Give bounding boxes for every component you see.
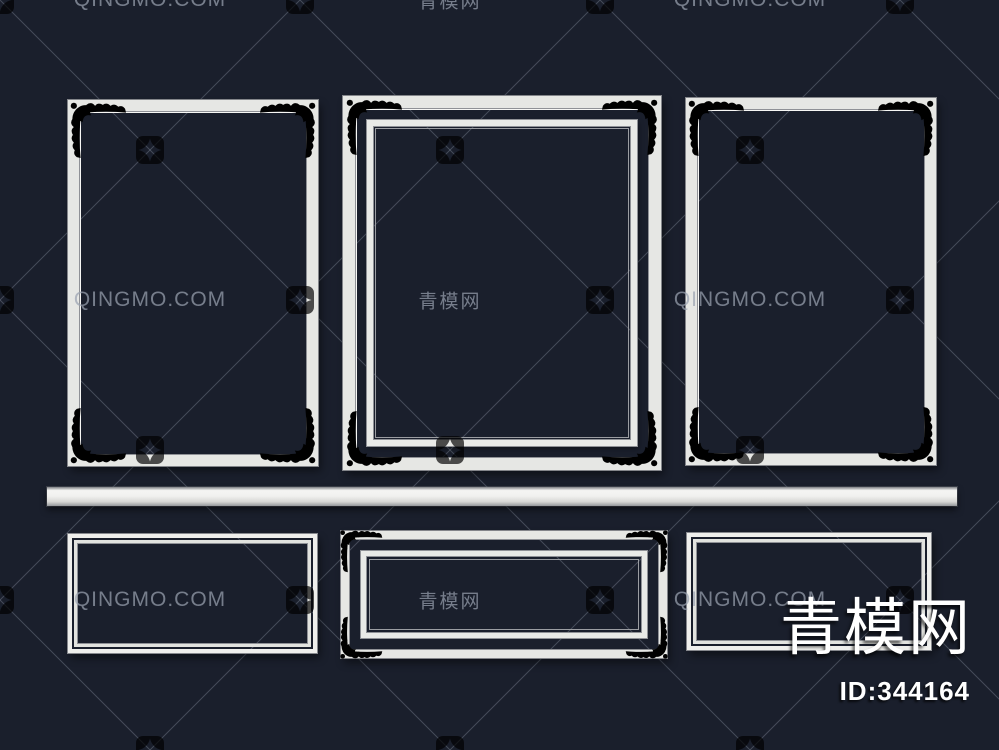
qingmo-logo-icon (435, 735, 465, 750)
wall-frame-top-right (686, 98, 936, 465)
inner-molding-rect (361, 551, 647, 638)
qingmo-logo-icon (0, 285, 15, 315)
qingmo-logo-icon (285, 0, 315, 15)
brand-block: 青模网 ID:344164 (780, 598, 972, 707)
watermark-text: QINGMO.COM (74, 0, 226, 12)
qingmo-logo-icon (0, 0, 15, 15)
watermark-text: QINGMO.COM (674, 0, 826, 12)
corner-ornament-icon (601, 98, 659, 156)
corner-ornament-icon (687, 406, 745, 464)
corner-ornament-icon (259, 101, 317, 159)
corner-ornament-icon (259, 407, 317, 465)
qingmo-logo-icon (585, 0, 615, 15)
corner-ornament-icon (625, 529, 669, 573)
inner-molding-rect (367, 120, 637, 446)
wall-molding-rail (47, 487, 957, 506)
corner-ornament-icon (345, 98, 403, 156)
wall-frame-top-left (68, 100, 318, 466)
corner-ornament-icon (69, 101, 127, 159)
model-preview-stage: QINGMO.COMQINGMO.COM青模网QINGMO.COMQINGMO.… (0, 0, 999, 750)
corner-ornament-icon (877, 99, 935, 157)
qingmo-logo-icon (735, 735, 765, 750)
brand-logo-text: 青模网 (780, 598, 972, 660)
wall-frame-bottom-left (68, 534, 317, 653)
wall-frame-bottom-center (341, 531, 667, 658)
corner-ornament-icon (69, 407, 127, 465)
corner-ornament-icon (601, 410, 659, 468)
qingmo-logo-icon (0, 585, 15, 615)
corner-ornament-icon (339, 616, 383, 660)
wall-frame-top-center (343, 96, 661, 470)
model-id-label: ID:344164 (780, 676, 970, 707)
corner-ornament-icon (345, 410, 403, 468)
qingmo-logo-icon (135, 735, 165, 750)
corner-ornament-icon (877, 406, 935, 464)
watermark-text: 青模网 (418, 0, 481, 14)
corner-ornament-icon (339, 529, 383, 573)
qingmo-logo-icon (885, 0, 915, 15)
corner-ornament-icon (625, 616, 669, 660)
corner-ornament-icon (687, 99, 745, 157)
